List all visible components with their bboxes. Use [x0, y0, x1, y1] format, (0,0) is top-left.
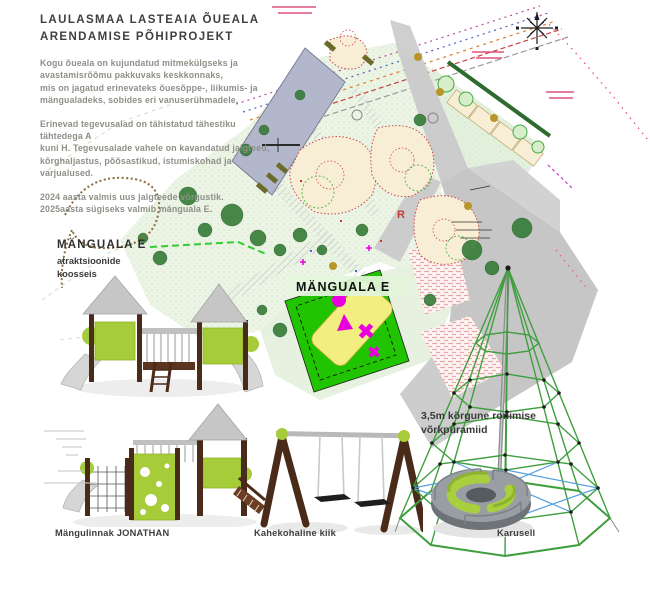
zones-paragraph: Erinevad tegevusalad on tähistatud tähes…	[40, 118, 275, 180]
page-title: LAULASMAA LASTEAIA ÕUEALA ARENDAMISE PÕH…	[40, 12, 275, 46]
castle-label: Mängulinnak JONATHAN	[55, 528, 169, 538]
callout-subtitle: atraktsioonide koosseis	[57, 255, 147, 281]
header-block: LAULASMAA LASTEAIA ÕUEALA ARENDAMISE PÕH…	[40, 12, 275, 215]
compass-rose-icon	[515, 8, 560, 53]
swing-label: Kahekohaline kiik	[254, 528, 336, 538]
faint-spec-text	[44, 430, 96, 490]
pyramid-label: 3,5m kõrgune ronimise võrkpüramiid	[421, 409, 536, 437]
manguala-callout: MÄNGUALA E atraktsioonide koosseis	[57, 239, 147, 281]
poster-board: R MÄNGUALA E	[0, 0, 650, 596]
castle-view-top	[61, 276, 263, 397]
plan-letter-r: R	[397, 209, 405, 221]
callout-title: MÄNGUALA E	[57, 239, 147, 251]
intro-paragraph: Kogu õueala on kujundatud mitmekülgseks …	[40, 57, 275, 107]
timeline-paragraph: 2024 aasta valmis uus jalgteede võrgusti…	[40, 191, 275, 216]
plan-area-label: MÄNGUALA E	[296, 279, 390, 294]
carousel-label: Karusell	[497, 528, 535, 538]
